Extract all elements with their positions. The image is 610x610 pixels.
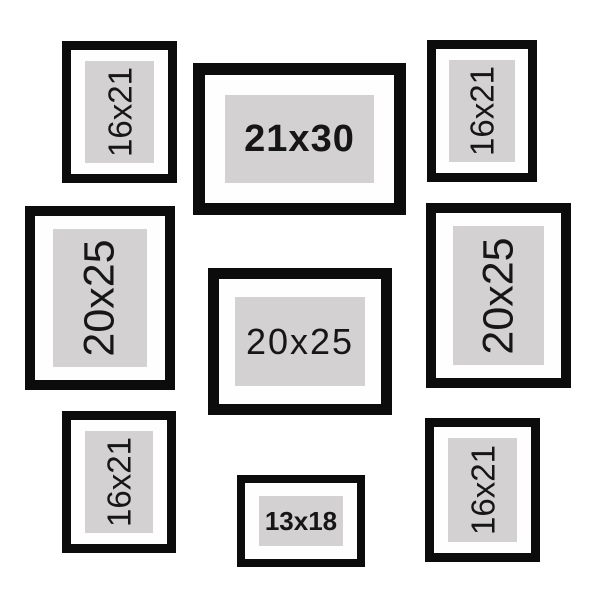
frame-mat: 20x25 bbox=[35, 216, 165, 380]
photo-placeholder: 16x21 bbox=[449, 60, 515, 162]
frame-mat: 13x18 bbox=[245, 483, 357, 559]
photo-frame-middle-center: 20x25 bbox=[208, 268, 392, 415]
frame-mat: 16x21 bbox=[71, 50, 168, 174]
photo-frame-top-right: 16x21 bbox=[427, 40, 537, 182]
photo-placeholder: 16x21 bbox=[448, 438, 517, 542]
photo-placeholder: 16x21 bbox=[85, 431, 153, 533]
frame-size-label: 16x21 bbox=[103, 437, 136, 527]
frame-size-label: 16x21 bbox=[103, 67, 136, 157]
frame-mat: 20x25 bbox=[436, 213, 561, 378]
photo-placeholder: 20x25 bbox=[453, 226, 544, 365]
photo-frame-bottom-right: 16x21 bbox=[425, 418, 540, 562]
frame-size-label: 13x18 bbox=[265, 508, 337, 534]
photo-frame-bottom-center: 13x18 bbox=[237, 475, 365, 567]
frame-size-label: 20x25 bbox=[79, 239, 122, 356]
frame-size-label: 16x21 bbox=[466, 66, 499, 156]
photo-placeholder: 16x21 bbox=[85, 61, 154, 163]
frame-size-label: 21x30 bbox=[244, 120, 355, 158]
photo-placeholder: 21x30 bbox=[225, 95, 374, 183]
photo-placeholder: 20x25 bbox=[53, 229, 147, 367]
photo-frame-set-collage: 16x21 21x30 16x21 20x25 20x25 bbox=[0, 0, 610, 610]
frame-size-label: 20x25 bbox=[246, 324, 354, 360]
photo-frame-bottom-left: 16x21 bbox=[62, 411, 176, 553]
frame-mat: 16x21 bbox=[434, 427, 531, 553]
photo-frame-middle-right: 20x25 bbox=[426, 203, 571, 388]
photo-frame-top-left: 16x21 bbox=[62, 41, 177, 183]
photo-frame-top-center: 21x30 bbox=[193, 63, 406, 215]
photo-placeholder: 20x25 bbox=[235, 297, 365, 386]
photo-placeholder: 13x18 bbox=[259, 496, 343, 546]
frame-mat: 21x30 bbox=[205, 75, 394, 203]
frame-mat: 16x21 bbox=[71, 420, 167, 544]
frame-mat: 16x21 bbox=[436, 49, 528, 173]
frame-size-label: 16x21 bbox=[466, 445, 499, 535]
frame-mat: 20x25 bbox=[219, 279, 381, 404]
photo-frame-middle-left: 20x25 bbox=[25, 206, 175, 390]
frame-size-label: 20x25 bbox=[477, 237, 520, 354]
